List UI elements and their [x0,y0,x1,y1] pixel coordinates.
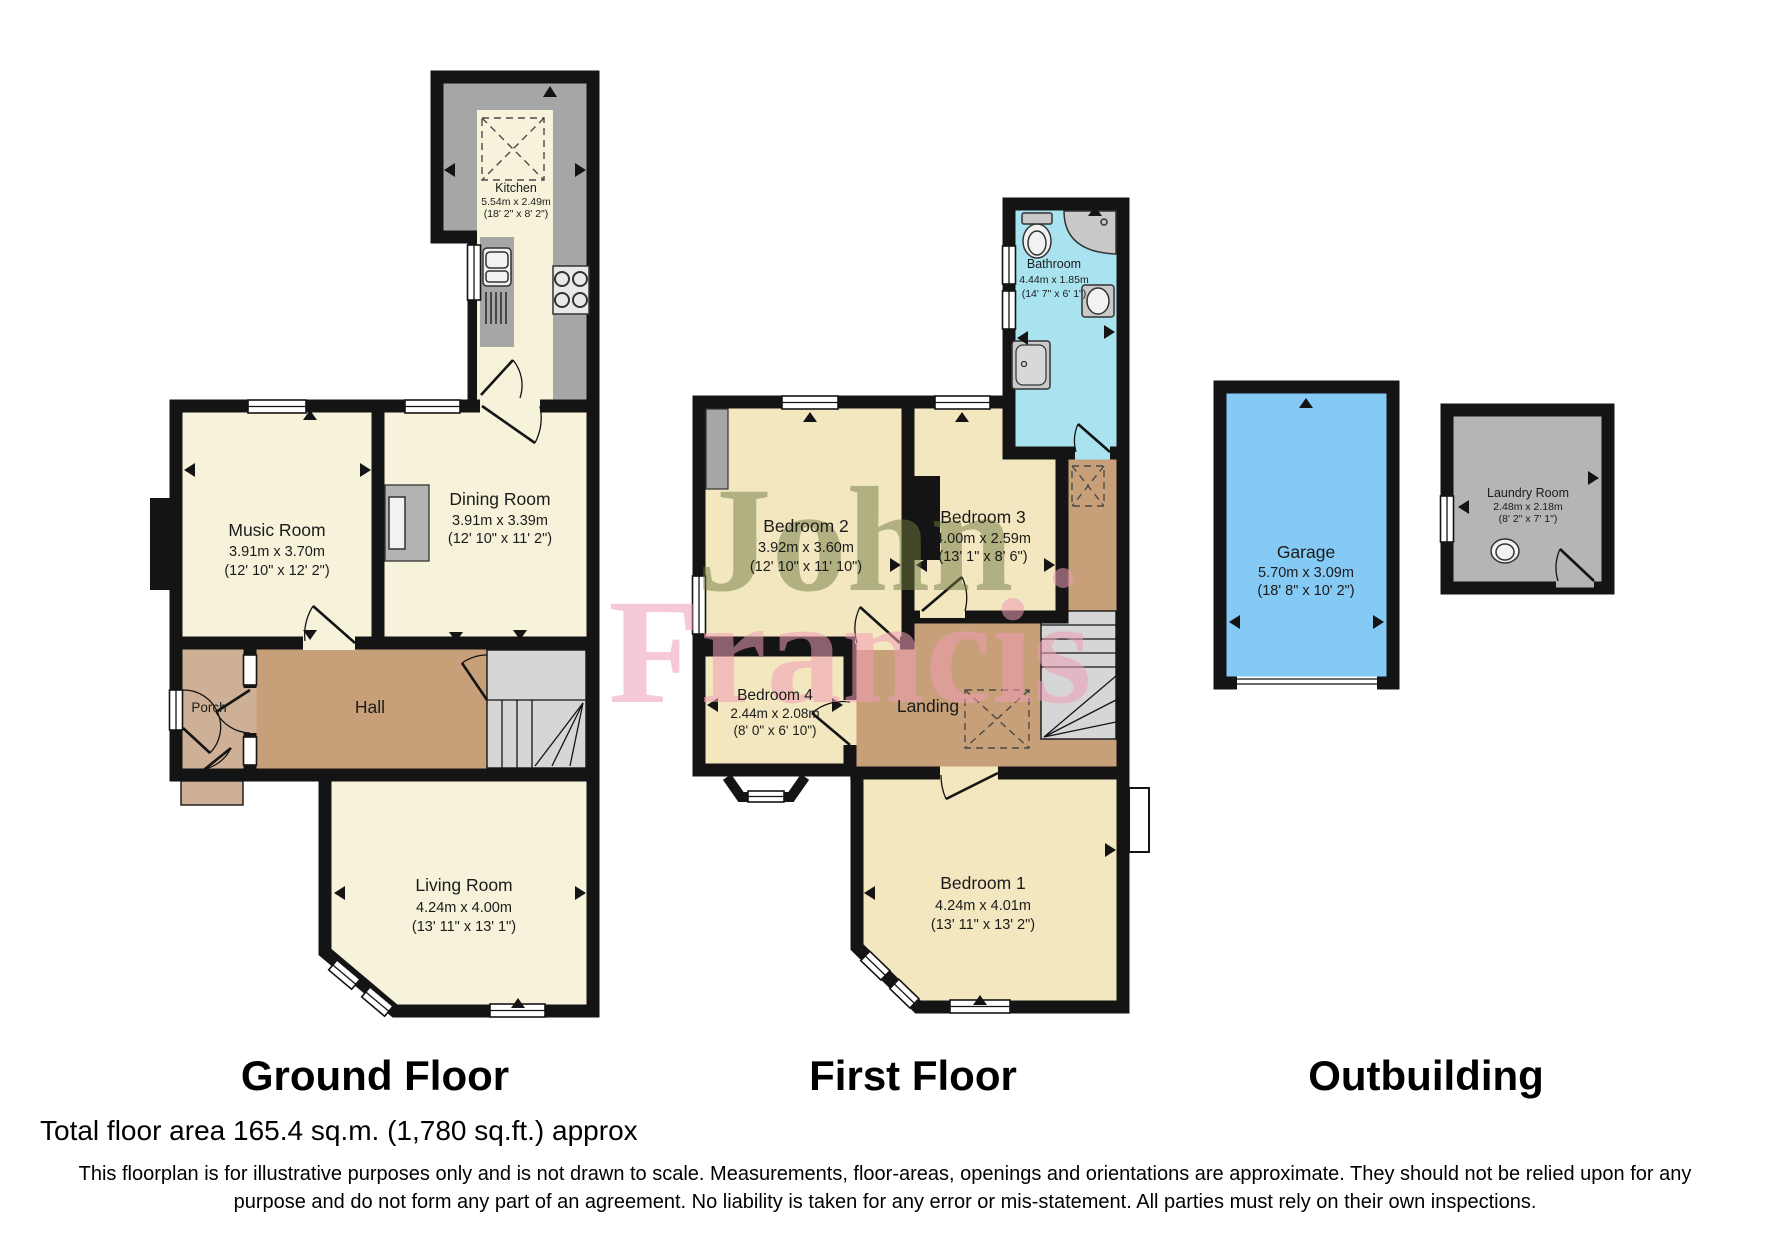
bathroom-label: Bathroom [1027,257,1081,271]
bathro om-imperial: (14' 7" x 6' 1") [1022,288,1087,300]
living-room-imperial: (13' 11" x 13' 1") [412,919,516,935]
window [782,396,838,409]
room-garage [1220,387,1393,690]
music-room-label: Music Room [228,520,325,540]
floorplan-drawing: John Francis Kitchen 5.54m x 2.49m (18' … [0,0,1771,1240]
outbuilding-title: Outbuilding [1308,1052,1544,1099]
section-titles: Ground Floor First Floor Outbuilding [241,1052,1544,1099]
dining-room-label: Dining Room [449,489,550,509]
toilet-icon [1022,213,1052,258]
room-kitchen [437,77,593,406]
bedroom4-metric: 2.44m x 2.08m [730,706,819,721]
bathroom-metric: 4.44m x 1.85m [1019,274,1089,286]
footer: Total floor area 165.4 sq.m. (1,780 sq.f… [40,1115,1691,1213]
laundry-imperial: (8' 2" x 7' 1") [1499,513,1558,525]
bedroom4-imperial: (8' 0" x 6' 10") [733,723,816,738]
landing-label: Landing [897,696,959,716]
kitchen-label: Kitchen [495,181,537,195]
bedroom3-imperial: (13' 1" x 8' 6") [938,549,1027,565]
fireplace [385,485,429,561]
laundry-metric: 2.48m x 2.18m [1493,501,1563,513]
wc-icon [1491,539,1519,563]
garage-metric: 5.70m x 3.09m [1258,565,1354,581]
basin-icon [1082,285,1114,317]
music-room-imperial: (12' 10" x 12' 2") [224,563,329,579]
room-porch [170,643,257,805]
window [468,245,481,300]
bedroom2-label: Bedroom 2 [763,516,849,536]
kitchen-imperial: (18' 2" x 8' 2") [484,208,549,220]
room-living-room [325,775,593,1017]
kitchen-metric: 5.54m x 2.49m [481,196,551,208]
bay-window [727,777,805,802]
window [935,396,990,409]
window [1441,496,1454,542]
porch-label: Porch [191,700,226,715]
bedroom2-imperial: (12' 10" x 11' 10") [750,559,862,575]
bedroom3-metric: 4.00m x 2.59m [935,531,1031,547]
shower-icon [1012,341,1050,389]
chimney-breast [1129,788,1149,852]
bedroom1-label: Bedroom 1 [940,873,1026,893]
music-room-metric: 3.91m x 3.70m [229,544,325,560]
laundry-label: Laundry Room [1487,486,1569,500]
dining-room-metric: 3.91m x 3.39m [452,513,548,529]
bedroom2-metric: 3.92m x 3.60m [758,540,854,556]
ground-floor-title: Ground Floor [241,1052,509,1099]
watermark-line2: Francis [608,569,1091,735]
total-floor-area: Total floor area 165.4 sq.m. (1,780 sq.f… [40,1115,638,1146]
window [405,400,460,413]
dining-room-imperial: (12' 10" x 11' 2") [448,531,552,547]
hob-icon [553,266,589,314]
bedroom4-label: Bedroom 4 [737,687,813,704]
floorplan-page: John Francis Kitchen 5.54m x 2.49m (18' … [0,0,1771,1240]
porch-step [181,781,243,805]
disclaimer-line2: purpose and do not form any part of an a… [234,1191,1537,1213]
wall [1117,440,1130,780]
window [248,400,306,413]
outbuilding-plan [1220,387,1608,690]
living-room-metric: 4.24m x 4.00m [416,900,512,916]
bedroom3-label: Bedroom 3 [940,507,1026,527]
garage-label: Garage [1277,542,1335,562]
bedroom1-imperial: (13' 11" x 13' 2") [931,917,1035,933]
first-floor-title: First Floor [809,1052,1017,1099]
garage-imperial: (18' 8" x 10' 2") [1257,583,1354,599]
garage-door [1237,677,1377,690]
bedroom1-metric: 4.24m x 4.01m [935,898,1031,914]
chimney-breast [150,498,177,590]
living-room-label: Living Room [415,875,512,895]
disclaimer-line1: This floorplan is for illustrative purpo… [79,1163,1692,1185]
hall-label: Hall [355,697,385,717]
